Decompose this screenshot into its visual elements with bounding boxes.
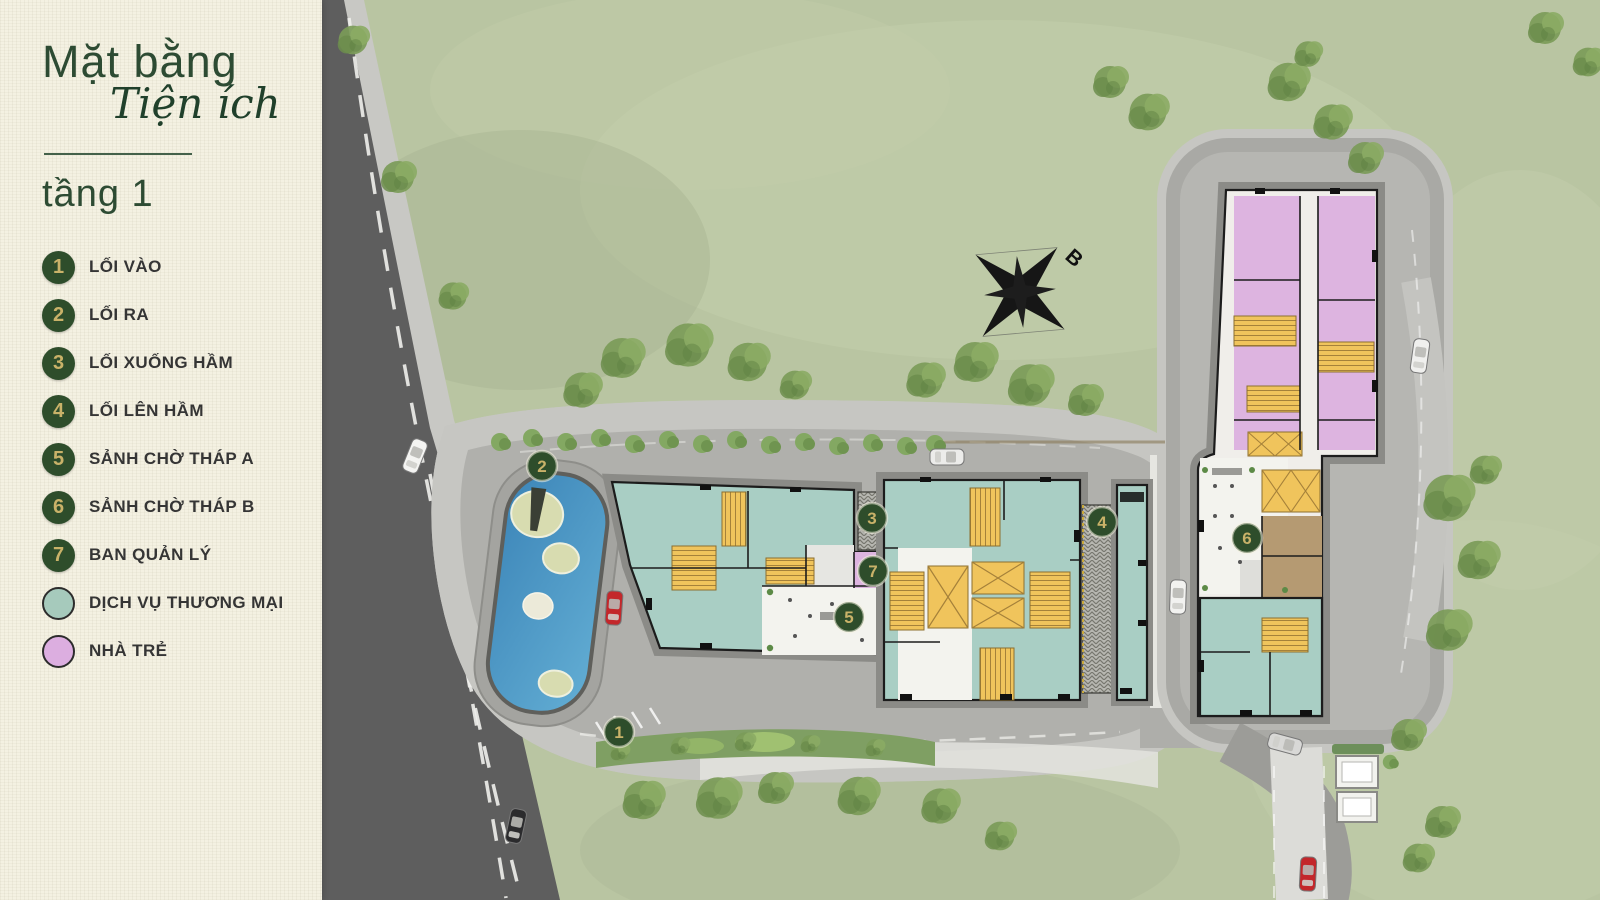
legend-badge-4: 4	[42, 395, 75, 428]
car-red	[605, 590, 623, 625]
legend-label-management: BAN QUẢN LÝ	[89, 545, 211, 565]
towerb-commercial	[1200, 598, 1322, 716]
marker-entrance: 1	[604, 717, 634, 747]
legend-swatch-commercial	[42, 587, 75, 620]
legend-label-ramp-down: LỐI XUỐNG HẦM	[89, 353, 233, 373]
svg-text:6: 6	[1242, 529, 1251, 548]
towerb-lobby-elevators	[1262, 470, 1320, 512]
car-white	[1169, 580, 1186, 615]
utility-structures	[1336, 756, 1378, 822]
svg-text:2: 2	[537, 457, 546, 476]
legend-item-commercial: DỊCH VỤ THƯƠNG MẠI	[42, 586, 302, 620]
car-red	[1299, 857, 1317, 892]
legend-badge-2: 2	[42, 299, 75, 332]
legend-badge-7: 7	[42, 539, 75, 572]
legend-item-management: 7 BAN QUẢN LÝ	[42, 538, 302, 572]
kindergarten-right-wing	[1318, 196, 1375, 450]
svg-text:5: 5	[844, 608, 853, 627]
title-divider	[44, 153, 192, 155]
legend-item-exit: 2 LỐI RA	[42, 298, 302, 332]
marker-management: 7	[858, 556, 888, 586]
svg-text:1: 1	[614, 723, 623, 742]
legend-item-ramp-up: 4 LỐI LÊN HẦM	[42, 394, 302, 428]
marker-ramp-up: 4	[1087, 507, 1117, 537]
svg-text:7: 7	[868, 562, 877, 581]
marker-ramp-down: 3	[857, 503, 887, 533]
back-of-house	[1262, 516, 1322, 598]
floor-subtitle: tầng 1	[42, 173, 302, 216]
legend-label-lobby-b: SẢNH CHỜ THÁP B	[89, 497, 255, 517]
center-building	[884, 477, 1080, 700]
legend-item-kindergarten: NHÀ TRẺ	[42, 634, 302, 668]
legend-label-entrance: LỐI VÀO	[89, 257, 162, 277]
legend-label-exit: LỐI RA	[89, 305, 149, 325]
svg-text:4: 4	[1097, 513, 1107, 532]
marker-lobby-a: 5	[834, 602, 864, 632]
legend-label-ramp-up: LỐI LÊN HẦM	[89, 401, 204, 421]
page-title: Mặt bằng Tiện ích tầng 1	[42, 38, 302, 216]
car-white	[930, 449, 964, 465]
legend-badge-1: 1	[42, 251, 75, 284]
legend-badge-5: 5	[42, 443, 75, 476]
legend-badge-6: 6	[42, 491, 75, 524]
legend-item-entrance: 1 LỐI VÀO	[42, 250, 302, 284]
site-plan-screenshot: B 1 2 3 4 5 6 7 Mặt bằng Tiện ích tầng 1…	[0, 0, 1600, 900]
legend-item-lobby-b: 6 SẢNH CHỜ THÁP B	[42, 490, 302, 524]
legend-panel: Mặt bằng Tiện ích tầng 1 1 LỐI VÀO 2 LỐI…	[0, 0, 322, 900]
legend-item-lobby-a: 5 SẢNH CHỜ THÁP A	[42, 442, 302, 476]
marker-exit: 2	[527, 451, 557, 481]
legend-label-lobby-a: SẢNH CHỜ THÁP A	[89, 449, 254, 469]
legend-label-commercial: DỊCH VỤ THƯƠNG MẠI	[89, 593, 283, 613]
svg-text:3: 3	[867, 509, 876, 528]
strip-building	[1117, 485, 1147, 700]
marker-lobby-b: 6	[1232, 523, 1262, 553]
legend-label-kindergarten: NHÀ TRẺ	[89, 641, 167, 661]
title-line-1: Mặt bằng	[42, 38, 302, 85]
towerb-elevators	[1248, 432, 1302, 456]
legend-badge-3: 3	[42, 347, 75, 380]
hedge-strip	[1332, 744, 1384, 754]
legend-swatch-kindergarten	[42, 635, 75, 668]
title-line-2: Tiện ích	[110, 81, 302, 127]
legend-item-ramp-down: 3 LỐI XUỐNG HẦM	[42, 346, 302, 380]
legend-list: 1 LỐI VÀO 2 LỐI RA 3 LỐI XUỐNG HẦM 4 LỐI…	[42, 250, 302, 668]
